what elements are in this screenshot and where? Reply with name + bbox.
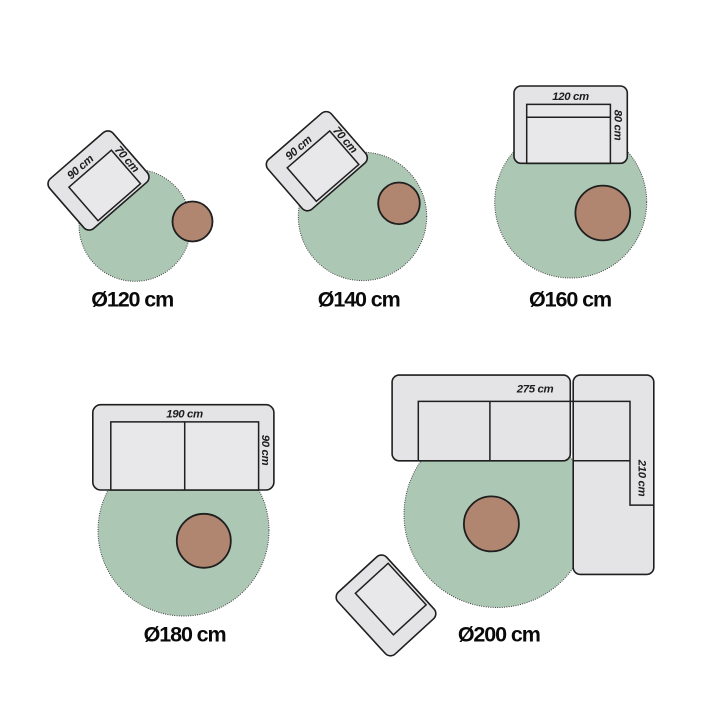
svg-text:Ø200 cm: Ø200 cm xyxy=(458,622,540,646)
svg-text:Ø120 cm: Ø120 cm xyxy=(91,288,173,312)
svg-text:275 cm: 275 cm xyxy=(516,384,554,396)
svg-text:80 cm: 80 cm xyxy=(612,110,624,141)
svg-text:90 cm: 90 cm xyxy=(259,435,271,466)
svg-text:Ø180 cm: Ø180 cm xyxy=(144,622,226,646)
svg-text:210 cm: 210 cm xyxy=(635,459,647,497)
svg-text:Ø140 cm: Ø140 cm xyxy=(318,288,400,312)
svg-text:120 cm: 120 cm xyxy=(552,91,589,103)
svg-text:190 cm: 190 cm xyxy=(166,409,203,421)
svg-text:Ø160 cm: Ø160 cm xyxy=(529,288,611,312)
